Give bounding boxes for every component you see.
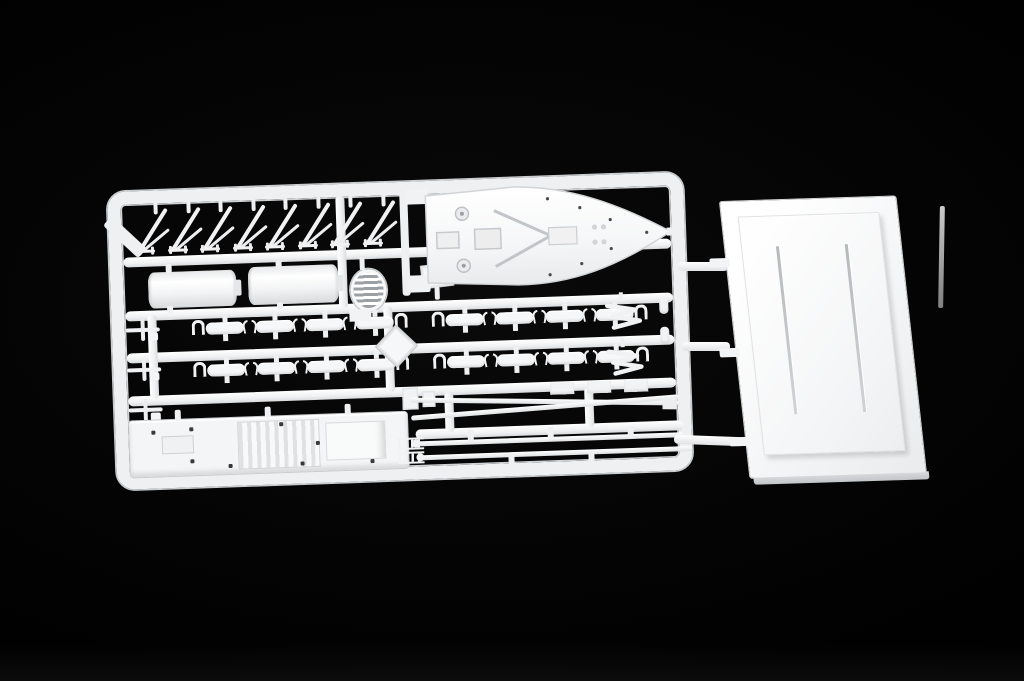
funnel-part [148, 270, 237, 309]
sprue-gate [588, 451, 594, 461]
stray-runner-edge [938, 206, 945, 308]
base-attachment-tab [729, 437, 750, 447]
davit-arm [236, 204, 265, 248]
lifeboat-unit [445, 313, 494, 327]
crane-bracket-shape [605, 345, 648, 378]
lifeboat-part [307, 360, 345, 373]
bollard-column [659, 297, 670, 344]
fitting-knob [148, 332, 158, 340]
bow-wing-part [408, 275, 431, 293]
lifeboat-unit [207, 363, 256, 377]
lifeboat-unit [545, 309, 594, 323]
davit-gate [186, 201, 190, 213]
davit-part [199, 203, 227, 254]
lifeboat-part [547, 352, 585, 365]
deck-hole [151, 431, 155, 435]
lifeboat-unit [256, 319, 305, 333]
parts-sprue [107, 172, 693, 490]
lifeboat-unit [206, 321, 255, 335]
sprue-gate [359, 257, 364, 270]
deck-fitting-part [127, 358, 168, 383]
fitting-bar [142, 359, 147, 381]
deck-hole [190, 459, 194, 463]
deck-hole [279, 422, 283, 426]
davit-part [361, 197, 389, 248]
davit-part [231, 202, 259, 253]
davit-clip-part [584, 307, 594, 321]
davit-part [296, 200, 324, 251]
davit-arm [138, 208, 167, 252]
lifeboat-group [192, 316, 408, 336]
lifeboat-part [497, 353, 535, 366]
sprue-gate [166, 264, 172, 273]
davit-gate [218, 200, 222, 212]
davit-clip-part [536, 350, 546, 364]
sprue-gate [508, 454, 514, 464]
lifeboat-unit [497, 353, 546, 367]
davit-clip-part [534, 308, 544, 322]
davit-part [133, 205, 161, 256]
deck-house [325, 421, 386, 461]
davit-arm [268, 203, 297, 247]
main-deck-part [129, 412, 409, 478]
sprue-gate [175, 410, 181, 421]
lifeboat-unit [257, 361, 306, 375]
sprue-gate [547, 427, 553, 439]
crane-bracket-part [603, 299, 646, 332]
davit-foot [330, 242, 350, 246]
davit-part [329, 198, 357, 249]
lifeboat-unit [357, 358, 395, 371]
fitting-knob [149, 372, 159, 380]
fitting-bar [140, 319, 145, 341]
deck-hatch [437, 232, 460, 249]
base-raised-panel [738, 212, 906, 455]
deck-fitting-part [125, 318, 166, 343]
davit-arm [301, 202, 330, 246]
deck-hatch [548, 227, 577, 245]
davit-arm [171, 207, 200, 251]
davit-foot [298, 243, 318, 247]
fitting-column [125, 318, 169, 423]
davit-part [264, 201, 292, 252]
davit-gate [251, 199, 255, 211]
deck-hole [229, 464, 233, 468]
lifeboat-unit [307, 360, 356, 374]
base-slot-area [739, 213, 905, 454]
deck-hole [189, 427, 193, 431]
bollard-part [659, 297, 669, 314]
bow-tip-gate [667, 227, 681, 235]
hull-support-slot [845, 244, 866, 412]
davit-clip-part [294, 317, 304, 331]
deck-hole [370, 459, 374, 463]
davit-foot [363, 241, 383, 245]
lifeboat-part [495, 311, 533, 324]
davit-arm [333, 201, 362, 245]
sprue-gate [620, 338, 624, 347]
bow-deck-part [397, 172, 683, 304]
sprue-gate [277, 302, 283, 309]
lifeboat-unit [495, 311, 544, 325]
fitting-bar [143, 399, 148, 421]
lifeboat-part [357, 358, 395, 371]
davit-foot [265, 244, 285, 248]
lifeboat-part [306, 318, 344, 331]
davit-clip-part [486, 352, 496, 366]
davit-clip-part [246, 361, 256, 375]
davit-arm [203, 205, 232, 249]
davit-gate [284, 198, 288, 210]
davit-clip-part [346, 357, 356, 371]
davit-part [166, 204, 194, 255]
davit-clip-part [244, 319, 254, 333]
davit-foot [135, 249, 155, 253]
deck-hatch [474, 228, 501, 249]
sprue-gate [345, 404, 351, 415]
sprue-gate [265, 407, 271, 418]
bracket-column [603, 299, 648, 378]
davit-foot [200, 247, 220, 251]
lifeboat-part [206, 321, 244, 334]
small-box-part [349, 309, 371, 322]
bow-wing-part [405, 189, 428, 205]
lifeboat-part [447, 355, 485, 368]
hull-support-slot [776, 246, 797, 414]
sprue-gate [167, 306, 173, 313]
davit-clip-part [586, 349, 596, 363]
lifeboat-part [445, 313, 483, 326]
sprue-gate [627, 426, 633, 438]
display-base-part [720, 196, 926, 477]
photo-background [0, 0, 1024, 681]
base-attachment-tab [719, 347, 740, 357]
bollard-part [660, 327, 670, 344]
deck-hole [300, 461, 304, 465]
davit-foot [233, 246, 253, 250]
base-attachment-tab [709, 258, 730, 268]
deck-hole [316, 441, 320, 445]
davit-gate [153, 202, 157, 214]
funnel-part [248, 264, 339, 305]
davit-gate [381, 194, 385, 206]
lifeboat-group [193, 358, 409, 378]
davit-clip-part [296, 359, 306, 373]
lifeboat-unit [447, 355, 496, 369]
crane-bracket-part [605, 345, 648, 378]
sprue-gate [275, 260, 281, 268]
lifeboat-part [257, 362, 295, 375]
davit-row [133, 197, 389, 256]
skylight-ribs [237, 419, 321, 470]
davit-foot [168, 248, 188, 252]
davit-gate [316, 197, 320, 209]
lifeboat-unit [306, 318, 355, 332]
lifeboat-unit [547, 351, 596, 365]
lifeboat-part [545, 310, 583, 323]
lifeboat-part [256, 320, 294, 333]
deck-hatch [162, 435, 195, 454]
lifeboat-part [207, 363, 245, 376]
crane-bracket-shape [603, 299, 646, 332]
sprue-gate [467, 429, 473, 441]
davit-clip-part [484, 310, 494, 324]
